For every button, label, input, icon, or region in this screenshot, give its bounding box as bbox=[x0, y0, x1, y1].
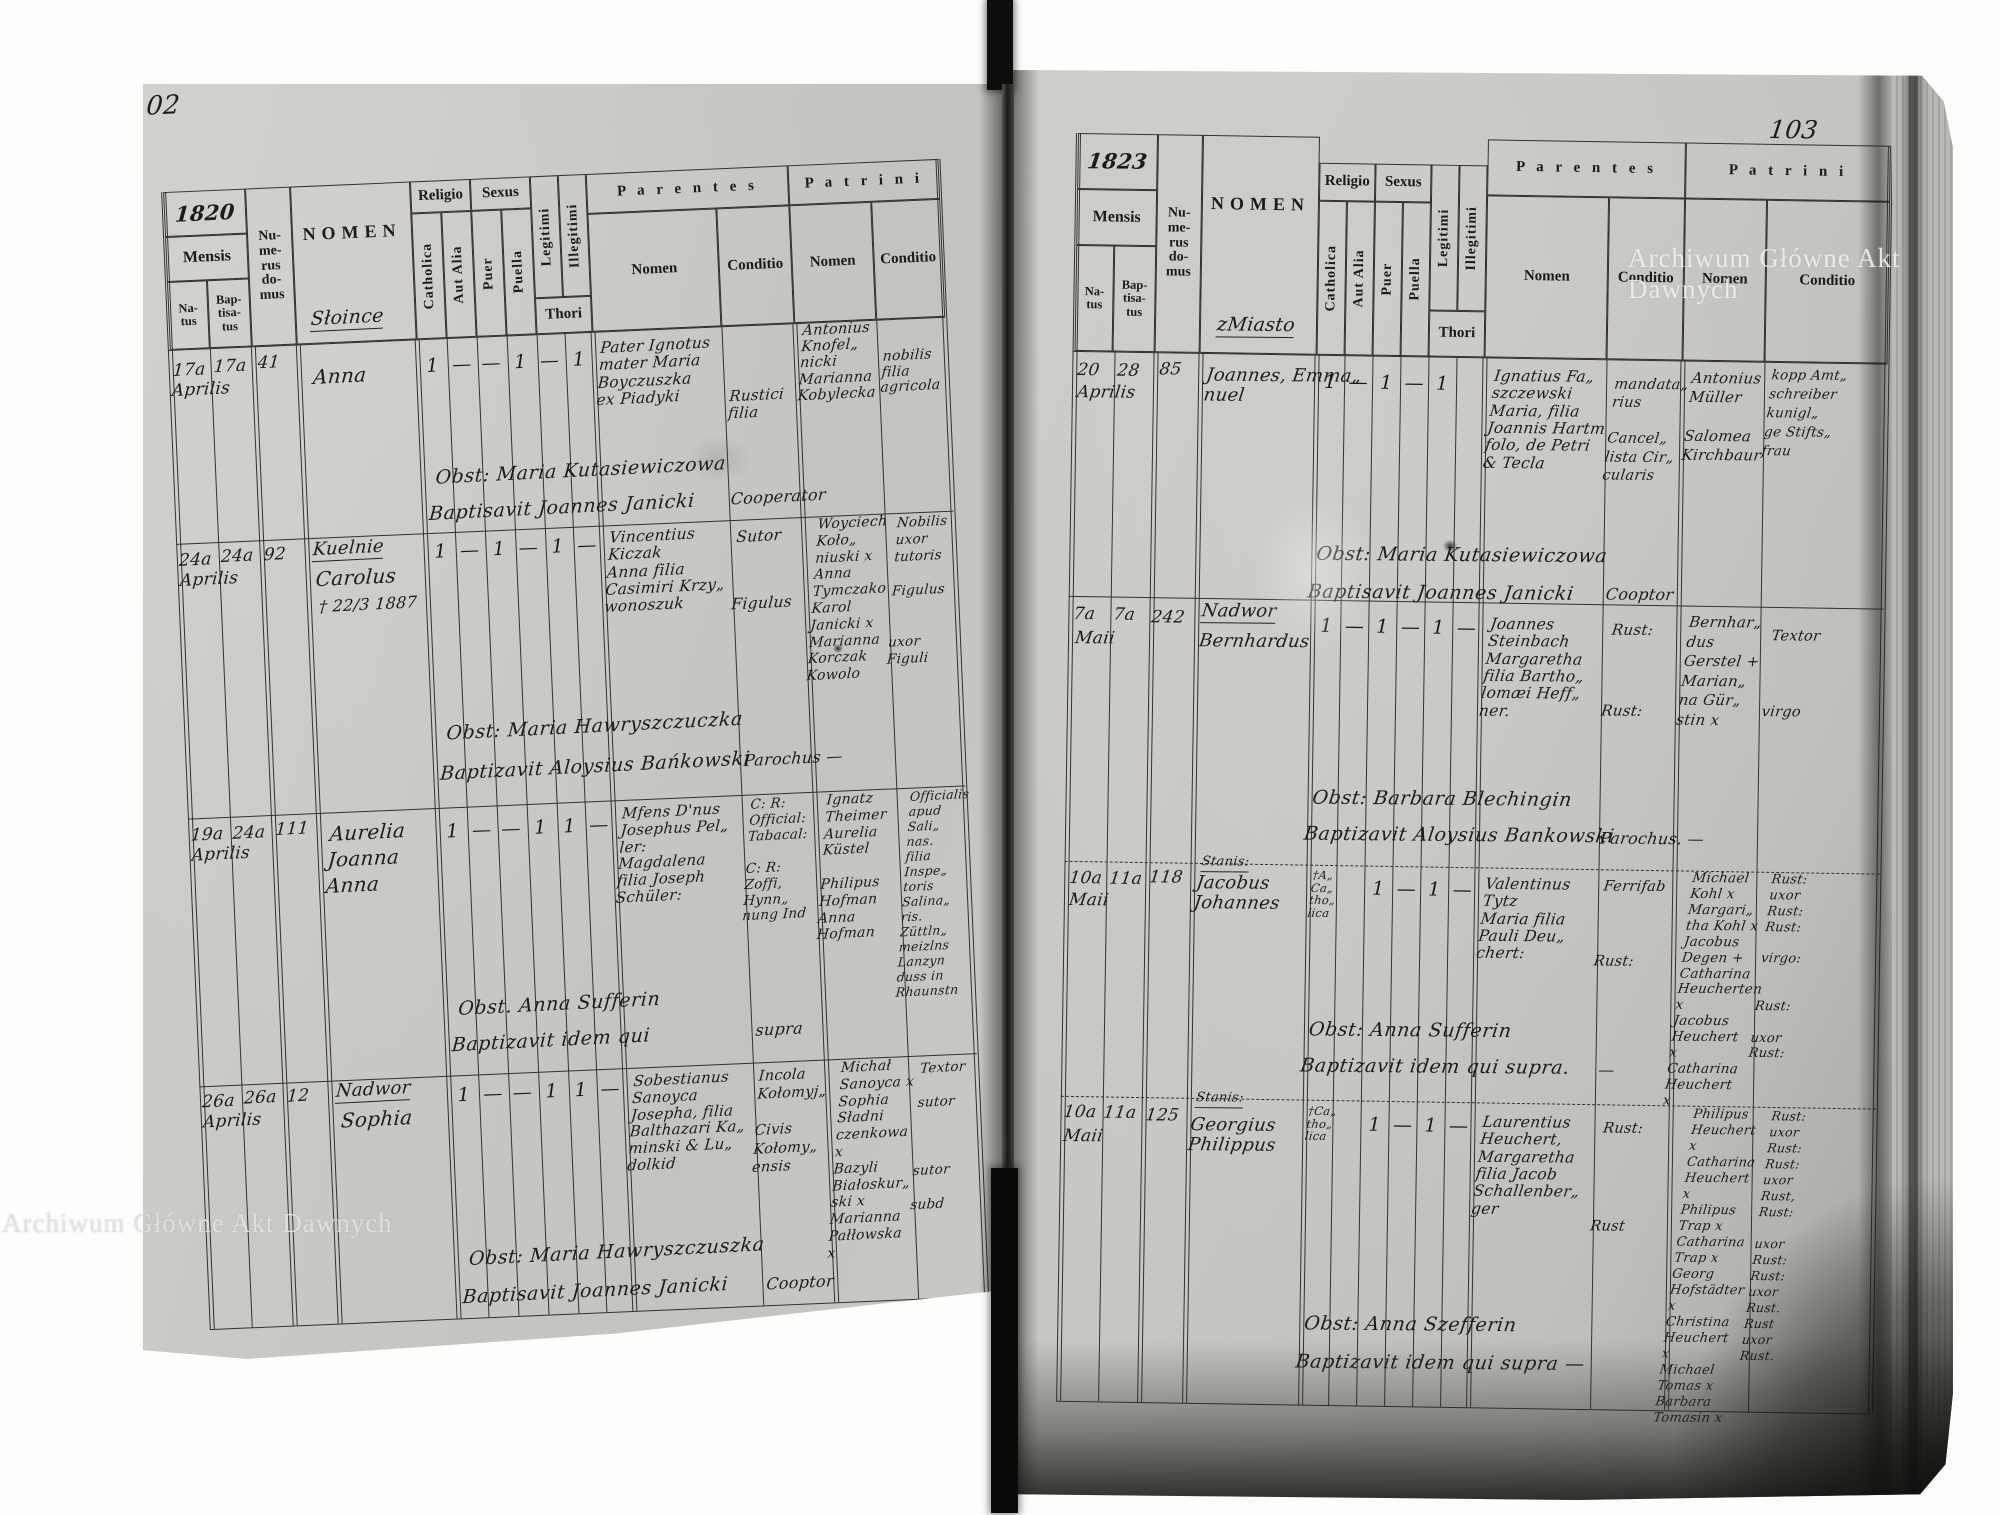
godparents-condition: Nobilis uxor tutoris Figulus uxor Figuli bbox=[886, 512, 959, 669]
baptized-by-note: Baptisavit Joannes Janicki bbox=[462, 1274, 729, 1309]
book-spine-bottom bbox=[991, 1168, 1018, 1513]
header-parentes-nomen: Nomen bbox=[587, 208, 721, 331]
month: Maii bbox=[1074, 629, 1116, 648]
house-number: 85 bbox=[1158, 360, 1183, 379]
header-baptisatus: Bap- tisa- tus bbox=[207, 278, 252, 348]
natus-date: 26a bbox=[201, 1092, 235, 1113]
midwife-note: Obst: Maria Hawryszczuszka bbox=[468, 1234, 765, 1270]
child-name: Sophia bbox=[340, 1106, 413, 1132]
parents-condition: Incola Kołomyj„ Civis Kołomy„ ensis bbox=[751, 1064, 827, 1177]
child-name: Georgius Philippus bbox=[1187, 1115, 1280, 1156]
header-aut-alia: Aut Alia bbox=[1351, 249, 1368, 307]
header-puella: Puella bbox=[510, 250, 528, 294]
parents-name: Ignatius Fa„ szczewski Maria, filia Joan… bbox=[1482, 368, 1616, 473]
house-number: 118 bbox=[1148, 868, 1184, 887]
header-catholica: Catholica bbox=[1323, 245, 1340, 312]
godparents-condition: Officialis apud Sali„ nas. filia Inspe„ … bbox=[895, 786, 974, 1000]
midwife-note: Obst: Barbara Blechingin bbox=[1311, 788, 1573, 811]
header-patrini-conditio: Conditio bbox=[871, 199, 945, 320]
header-illegitimi-box: Illegitimi bbox=[1457, 165, 1487, 311]
priest-condition: supra bbox=[755, 1019, 804, 1039]
archive-watermark-top: Archiwum Główne Akt Dawnych bbox=[1628, 243, 2000, 305]
godparents-name: Woyciech Koło„ niuski x Anna Tymczako Ka… bbox=[806, 513, 894, 685]
baptized-by-note: Baptisavit Joannes Janicki bbox=[428, 491, 695, 526]
header-legitimi: Legitimi bbox=[537, 207, 555, 266]
year-box: 1823 bbox=[1077, 133, 1158, 190]
child-name: Aurelia Joanna Anna bbox=[325, 817, 406, 899]
header-illegitimi: Illegitimi bbox=[565, 203, 584, 268]
header-parentes-nomen: Nomen bbox=[1485, 195, 1610, 359]
header-catholica: Catholica bbox=[420, 242, 439, 309]
ink-spot bbox=[1443, 540, 1457, 552]
natus-date: 24a bbox=[178, 550, 212, 571]
header-parentes-conditio: Conditio bbox=[716, 205, 794, 326]
tally-marks: 1——1—1 bbox=[417, 348, 594, 377]
godparents-name: Antonius Knofel„ nicki Marianna Kobyleck… bbox=[797, 319, 881, 404]
register-row: 10a 11a 118 Maii Stanis: Jacobus Johanne… bbox=[1024, 70, 1964, 85]
header-natus: Na- tus bbox=[1075, 245, 1115, 352]
header-numerus-domus: Nu- me- rus do- mus bbox=[1155, 134, 1203, 353]
parents-name: Mfens D'nus Josephus Pel„ ler: Magdalena… bbox=[615, 799, 748, 906]
paper-stain bbox=[683, 434, 753, 484]
tally-marks: 1—1—1 bbox=[1316, 371, 1484, 396]
house-number: 12 bbox=[286, 1087, 310, 1107]
midwife-note: Obst: Anna Sufferin bbox=[1307, 1019, 1512, 1042]
house-number: 92 bbox=[263, 545, 287, 565]
header-puer: Puer bbox=[480, 257, 497, 290]
month: Aprilis bbox=[191, 844, 251, 866]
book-spine-top bbox=[987, 0, 1013, 90]
register-row: 7a 7a 242 Maii Nadwor Bernhardus 1—1—1— … bbox=[1024, 70, 1964, 85]
godparents-condition: nobilis filia agricola bbox=[880, 346, 947, 396]
header-illegitimi: Illegitimi bbox=[1464, 206, 1481, 271]
month: Maii bbox=[1068, 891, 1110, 910]
header-patrini: P a t r i n i bbox=[788, 159, 941, 205]
row-heading: Kuelnie bbox=[312, 537, 385, 563]
ink-spot bbox=[833, 644, 843, 653]
parents-condition: Sutor Figulus bbox=[731, 523, 804, 617]
tally-marks: 1—1— bbox=[1304, 1113, 1472, 1138]
baptisatus-date: 17a bbox=[213, 357, 247, 378]
header-sexus: Sexus bbox=[1375, 164, 1432, 203]
header-aut-alia-box: Aut Alia bbox=[1345, 201, 1375, 355]
header-thori: Thori bbox=[1429, 310, 1486, 357]
register-row: 17a 17a 41 Aprilis Anna 1——1—1 Pater Ign… bbox=[88, 48, 947, 85]
priest-condition: Parochus. — bbox=[1599, 830, 1706, 849]
death-note: † 22/3 1887 bbox=[318, 593, 417, 616]
header-legitimi: Legitimi bbox=[1436, 208, 1453, 267]
house-number: 41 bbox=[257, 353, 281, 373]
midwife-note: Obst: Anna Szefferin bbox=[1303, 1313, 1518, 1336]
paper-ghost-mark bbox=[1253, 490, 1373, 650]
priest-condition: Cooptor bbox=[766, 1272, 835, 1293]
natus-date: 20 bbox=[1076, 361, 1101, 380]
header-catholica-box: Catholica bbox=[1317, 201, 1347, 355]
header-thori: Thori bbox=[535, 296, 592, 334]
page-number: 102 bbox=[128, 91, 181, 123]
priest-condition: Cooptor bbox=[1605, 586, 1675, 604]
header-nomen: NOMEN bbox=[1203, 194, 1318, 215]
priest-condition: Parochus — bbox=[743, 747, 843, 770]
parents-name: Pater Ignotus mater Maria Boyczuszka ex … bbox=[596, 334, 727, 410]
header-parentes: P a r e n t e s bbox=[1487, 139, 1686, 198]
natus-date: 17a bbox=[172, 360, 206, 381]
house-number: 111 bbox=[275, 819, 310, 840]
archive-watermark-bottom: Archiwum Główne Akt Dawnych bbox=[2, 1208, 393, 1239]
midwife-note: Obst. Anna Sufferin bbox=[457, 989, 661, 1020]
left-page-content: 102 1820 Mensis Na- tus Bap- tisa- tus N… bbox=[88, 48, 1002, 1359]
header-puella: Puella bbox=[1407, 257, 1424, 301]
baptized-by-note: Baptizavit Aloysius Bankowski bbox=[1302, 824, 1615, 848]
baptized-by-note: Baptizavit idem qui supra. bbox=[1299, 1056, 1571, 1080]
register-row: 26a 26a 12 Aprilis Nadwor Sophia 1——11— … bbox=[88, 48, 947, 85]
header-sexus: Sexus bbox=[470, 176, 531, 211]
register-row: 20 28 85 Aprilis Joannes, Emma„ nuel 1—1… bbox=[1024, 70, 1964, 85]
parents-name: Valentinus Tytz Maria filia Pauli Deu„ c… bbox=[1475, 876, 1607, 964]
register-row: 24a 24a 92 Aprilis Kuelnie Carolus † 22/… bbox=[88, 48, 947, 85]
priest-condition: Cooperator bbox=[730, 486, 826, 509]
midwife-note: Obst: Maria Hawryszczuczka bbox=[446, 709, 744, 745]
natus-date: 19a bbox=[190, 825, 224, 846]
header-baptisatus: Bap- tisa- tus bbox=[1113, 246, 1157, 353]
header-numerus-domus: Nu- me- rus do- mus bbox=[245, 187, 297, 347]
tally-marks: 1——11— bbox=[449, 1077, 626, 1106]
header-puer: Puer bbox=[1380, 262, 1397, 295]
baptisatus-date: 24a bbox=[220, 546, 254, 567]
header-religio: Religio bbox=[410, 179, 471, 214]
year-value: 1823 bbox=[1086, 150, 1149, 174]
parents-condition: mandata„ rius Cancel„ lista Cir„ cularis bbox=[1601, 376, 1685, 485]
month: Aprilis bbox=[171, 379, 231, 401]
row-heading: Stanis: bbox=[1200, 855, 1250, 872]
page-number: 103 bbox=[1767, 116, 1819, 144]
header-natus: Na- tus bbox=[167, 280, 210, 350]
natus-date: 10a bbox=[1062, 1103, 1097, 1122]
header-patrini-nomen: Nomen bbox=[789, 202, 876, 323]
godparents-condition: Rust: uxor Rust: Rust: virgo: Rust: uxor… bbox=[1747, 872, 1872, 1063]
godparents-name: Antonius Müller Salomea Kirchbaur bbox=[1680, 369, 1769, 465]
house-number: 242 bbox=[1150, 608, 1186, 627]
parents-condition: Rust: Rust: bbox=[1600, 620, 1681, 722]
baptisatus-date: 26a bbox=[243, 1088, 277, 1109]
parents-condition: Rustici filia bbox=[728, 385, 796, 422]
header-nomen: NOMEN bbox=[293, 221, 412, 245]
month: Maii bbox=[1062, 1127, 1104, 1146]
register-row: 10a 11a 125 Maii Stanis: Georgius Philip… bbox=[1024, 70, 1964, 85]
book-gutter bbox=[1002, 84, 1014, 1174]
godparents-name: Bernhar„ dus Gerstel + Marian„ na Gür„ s… bbox=[1675, 613, 1766, 730]
parents-condition: C: R: Official: Tabacal: C: R: Zoffi, Hy… bbox=[742, 794, 817, 925]
table-border-left bbox=[1056, 133, 1081, 1401]
row-heading: Stanis: bbox=[1195, 1091, 1245, 1108]
godparents-name: Ignatz Theimer Aurelia Küstel Philipus H… bbox=[816, 789, 903, 945]
header-nomen-box: NOMEN zMiasto bbox=[1200, 135, 1320, 355]
baptisatus-date: 11a bbox=[1108, 870, 1143, 889]
parents-condition: Ferrifab Rust: bbox=[1592, 878, 1674, 973]
tally-marks: 1—1—1— bbox=[425, 534, 602, 563]
godparents-condition: Textor virgo bbox=[1760, 624, 1873, 726]
year-value: 1820 bbox=[174, 200, 235, 227]
header-puer-box: Puer bbox=[1373, 202, 1403, 356]
baptized-by-note: Baptizavit Aloysius Bańkowski bbox=[439, 748, 751, 785]
priest-condition: — bbox=[1597, 1061, 1616, 1079]
year-box: 1820 bbox=[163, 189, 247, 237]
child-name: Jacobus Johannes bbox=[1192, 873, 1283, 914]
natus-date: 10a bbox=[1068, 869, 1103, 888]
month: Aprilis bbox=[202, 1110, 262, 1132]
header-religio: Religio bbox=[1319, 163, 1376, 202]
house-number: 125 bbox=[1144, 1106, 1180, 1125]
natus-date: 7a bbox=[1072, 605, 1096, 624]
place-heading: zMiasto bbox=[1215, 314, 1296, 338]
header-legitimi-box: Legitimi bbox=[1429, 164, 1459, 310]
month: Aprilis bbox=[1076, 383, 1137, 403]
left-page-scan: 102 1820 Mensis Na- tus Bap- tisa- tus N… bbox=[143, 84, 1003, 1359]
child-name: Anna bbox=[312, 363, 367, 388]
tally-marks: 1——11— bbox=[437, 813, 614, 842]
baptisatus-date: 24a bbox=[232, 823, 266, 844]
godparents-condition: Textor sutor sutor subd bbox=[910, 1058, 983, 1215]
header-mensis: Mensis bbox=[1076, 189, 1157, 246]
parents-name: Joannes Steinbach Margaretha filia Barth… bbox=[1478, 616, 1612, 721]
header-mensis: Mensis bbox=[165, 234, 249, 282]
corner-shadow bbox=[1673, 1180, 1953, 1500]
godparents-name: Michał Sanoyca x Sophia Sładni czenkowa … bbox=[827, 1056, 918, 1262]
row-heading: Nadwor bbox=[335, 1078, 411, 1104]
place-heading: Słoince bbox=[310, 305, 385, 332]
month: Aprilis bbox=[179, 569, 239, 591]
parents-name: Laurentius Heuchert, Margaretha filia Ja… bbox=[1470, 1114, 1604, 1219]
parents-name: Vincentius Kiczak Anna filia Casimiri Kr… bbox=[604, 523, 736, 616]
tally-marks: 1—1— bbox=[1308, 877, 1476, 902]
register-row: 19a 24a 111 Aprilis Aurelia Joanna Anna … bbox=[88, 48, 947, 85]
header-aut-alia: Aut Alia bbox=[450, 245, 468, 304]
parents-name: Sobestianus Sanoyca Josepha, filia Balth… bbox=[627, 1067, 760, 1174]
header-nomen-box: NOMEN Słoince bbox=[290, 182, 417, 345]
baptisatus-date: 11a bbox=[1102, 1104, 1137, 1123]
header-puella-box: Puella bbox=[1401, 202, 1431, 356]
baptisatus-date: 28 bbox=[1116, 362, 1141, 381]
parents-condition: Rust: Rust bbox=[1589, 1120, 1674, 1238]
child-name: Carolus bbox=[315, 564, 397, 590]
baptisatus-date: 7a bbox=[1112, 606, 1136, 625]
